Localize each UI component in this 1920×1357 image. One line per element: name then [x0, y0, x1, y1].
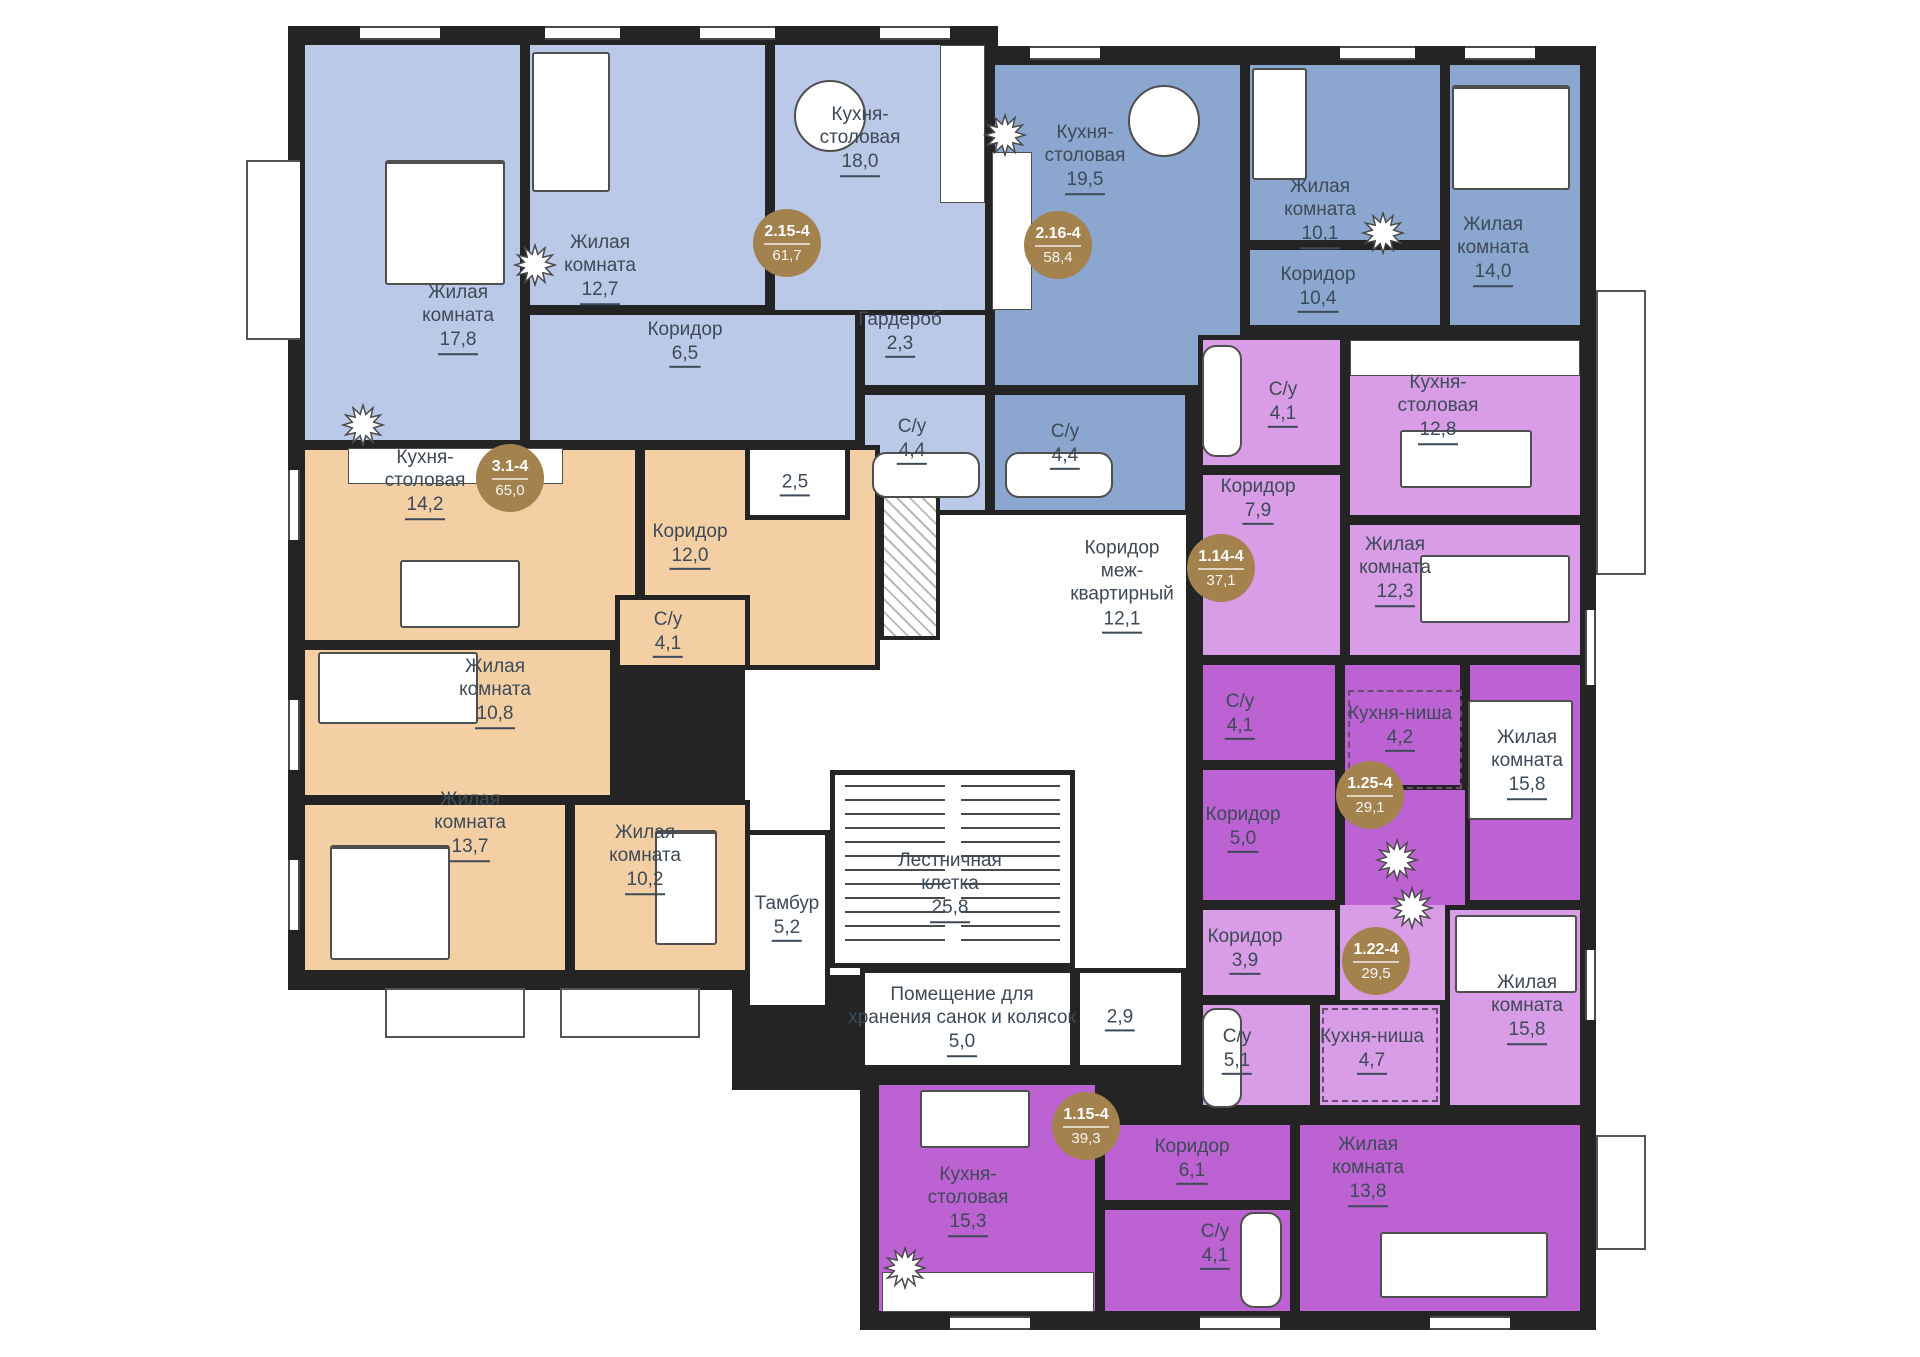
window: [1465, 46, 1535, 60]
bathtub-icon: [1202, 345, 1242, 457]
kitchen-counter-icon: [940, 45, 985, 203]
room-label: Коридор 12,0: [652, 520, 727, 570]
room-label: Жилая комната 17,8: [398, 281, 518, 355]
window: [360, 26, 440, 40]
balcony: [385, 988, 525, 1038]
room-label: Коридор 6,1: [1154, 1135, 1229, 1185]
sofa-icon: [532, 52, 610, 192]
room-label: Помещение для хранения санок и колясок 5…: [847, 983, 1077, 1057]
apartment-badge-2-15-4[interactable]: 2.15-4 61,7: [753, 209, 821, 277]
room-label: Коридор 5,0: [1205, 803, 1280, 853]
bathtub-icon: [1240, 1212, 1282, 1308]
room-label: Кухня-столовая 18,0: [795, 103, 925, 177]
window: [1030, 46, 1100, 60]
room-label: Кухня-столовая 14,2: [360, 446, 490, 520]
room-label: Жилая комната 10,8: [435, 655, 555, 729]
balcony: [1596, 290, 1646, 575]
room-label: Коридор 7,9: [1220, 475, 1295, 525]
room-label: С/у 4,1: [1268, 378, 1298, 428]
window: [1430, 1316, 1510, 1330]
window: [1585, 610, 1596, 685]
vent-star-icon: [1390, 886, 1434, 930]
apartment-badge-1-15-4[interactable]: 1.15-4 39,3: [1052, 1092, 1120, 1160]
balcony: [246, 160, 306, 340]
room-label: Кухня-столовая 12,8: [1373, 371, 1503, 445]
room-label: Жилая комната 12,7: [540, 231, 660, 305]
window: [700, 26, 775, 40]
room-label: Гардероб 2,3: [858, 308, 942, 358]
room-bath-4-1-p: [1198, 660, 1340, 765]
apartment-badge-1-22-4[interactable]: 1.22-4 29,5: [1342, 927, 1410, 995]
window: [880, 26, 950, 40]
dining-table-icon: [400, 560, 520, 628]
room-label: Жилая комната 13,8: [1308, 1133, 1428, 1207]
vent-star-icon: [341, 403, 385, 447]
bed-icon: [330, 845, 450, 960]
room-label: Жилая комната 10,1: [1260, 175, 1380, 249]
room-label: Кухня-столовая 15,3: [903, 1163, 1033, 1237]
room-label: 2,9: [1105, 1004, 1135, 1031]
room-label: С/у 4,4: [1050, 420, 1080, 470]
window: [1340, 46, 1415, 60]
room-label: Жилая комната 12,3: [1335, 533, 1455, 607]
window: [288, 700, 300, 770]
window: [288, 860, 300, 930]
room-label: 2,5: [780, 469, 810, 496]
apartment-badge-1-25-4[interactable]: 1.25-4 29,1: [1336, 761, 1404, 829]
apartment-badge-2-16-4[interactable]: 2.16-4 58,4: [1024, 211, 1092, 279]
balcony: [560, 988, 700, 1038]
room-label: С/у 4,1: [653, 608, 683, 658]
window: [1200, 1316, 1280, 1330]
window: [950, 1316, 1030, 1330]
vent-star-icon: [1375, 838, 1419, 882]
room-label: Коридор 10,4: [1280, 263, 1355, 313]
bed-icon: [385, 160, 505, 285]
room-label: Жилая комната 15,8: [1467, 971, 1587, 1045]
room-label: С/у 4,1: [1225, 690, 1255, 740]
room-label: С/у 5,1: [1222, 1025, 1252, 1075]
floor-plan: Жилая комната 17,8 Жилая комната 12,7 Ку…: [0, 0, 1920, 1357]
room-label: Кухня-столовая 19,5: [1020, 121, 1150, 195]
room-label: Кухня-ниша 4,2: [1325, 702, 1475, 752]
room-label: С/у 4,4: [897, 415, 927, 465]
room-label: Коридор 6,5: [647, 318, 722, 368]
room-label: Коридор меж-квартирный 12,1: [1062, 537, 1182, 634]
room-label: Кухня-ниша 4,7: [1297, 1025, 1447, 1075]
window: [288, 470, 300, 540]
window: [545, 26, 620, 40]
room-label: Жилая комната 15,8: [1467, 726, 1587, 800]
dining-table-icon: [920, 1090, 1030, 1148]
vent-star-icon: [883, 1246, 927, 1290]
sofa-icon: [1252, 68, 1307, 180]
apartment-badge-3-1-4[interactable]: 3.1-4 65,0: [476, 444, 544, 512]
room-label: Жилая комната 10,2: [585, 821, 705, 895]
room-label: Жилая комната 13,7: [410, 788, 530, 862]
room-label: Лестничная клетка 25,8: [870, 849, 1030, 923]
room-label: Коридор 3,9: [1207, 925, 1282, 975]
room-label: С/у 4,1: [1200, 1220, 1230, 1270]
balcony: [1596, 1135, 1646, 1250]
bed-icon: [1452, 85, 1570, 190]
sofa-icon: [1380, 1232, 1548, 1298]
room-label: Жилая комната 14,0: [1433, 213, 1553, 287]
apartment-badge-1-14-4[interactable]: 1.14-4 37,1: [1187, 534, 1255, 602]
room-label: Тамбур 5,2: [755, 892, 820, 942]
